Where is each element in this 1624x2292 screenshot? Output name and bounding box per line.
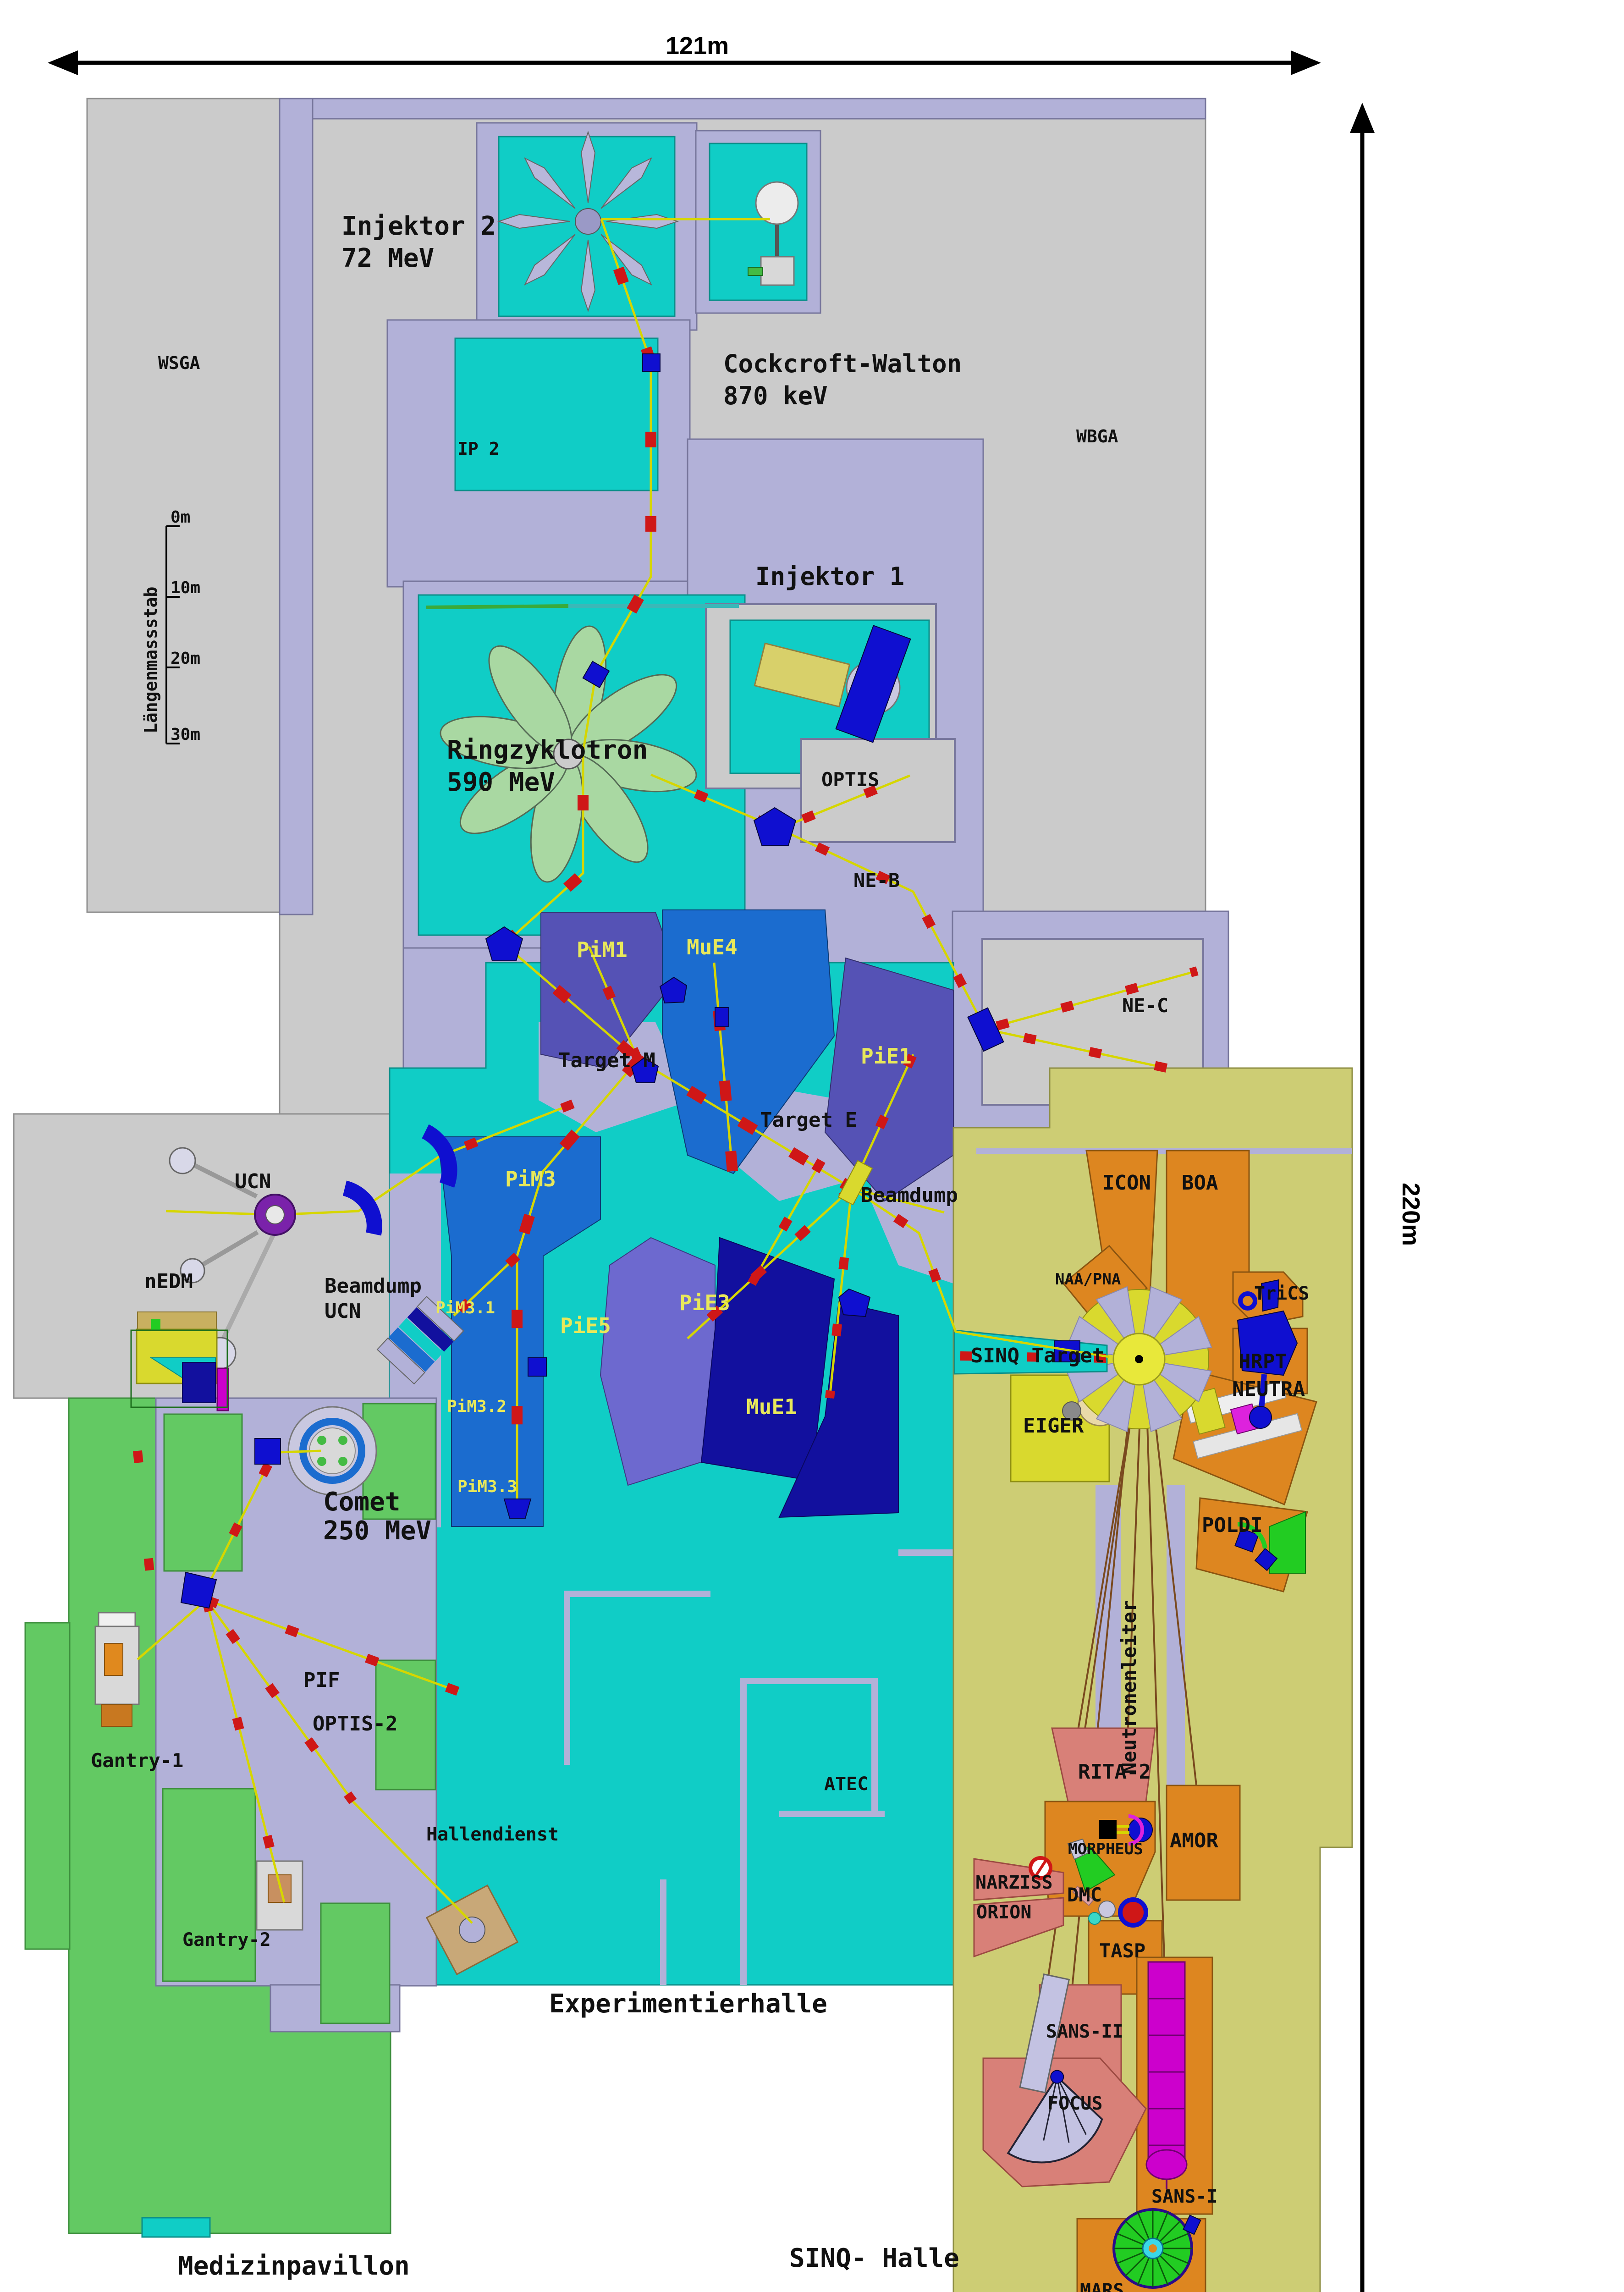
psi-facility-map: 121m 220m Längenmassstab 0m 10m 20m 30m … [0, 0, 1624, 2292]
nec-label: NE-C [1122, 994, 1168, 1017]
boa-label: BOA [1182, 1171, 1218, 1195]
ip2-room [455, 338, 658, 490]
target-m-label: Target M [558, 1049, 655, 1072]
ruler-title: Längenmassstab [141, 587, 161, 733]
pim3-3-label: PiM3.3 [457, 1477, 517, 1496]
ruler-tick-10: 10m [171, 579, 200, 597]
morpheus-label: MORPHEUS [1068, 1840, 1143, 1858]
focus-label: FOCUS [1047, 2093, 1102, 2114]
pie5-label: PiE5 [560, 1313, 611, 1338]
ucn-label: UCN [235, 1170, 271, 1193]
sans1-label: SANS-I [1151, 2186, 1218, 2207]
north-wall [280, 99, 1206, 119]
icon-label: ICON [1102, 1171, 1151, 1195]
rita2-label: RITA-2 [1078, 1760, 1151, 1784]
ruler-tick-20: 20m [171, 649, 200, 668]
hallendienst-label: Hallendienst [426, 1824, 559, 1845]
pie3-label: PiE3 [679, 1290, 730, 1315]
cockcroft-energy: 870 keV [723, 381, 828, 410]
pim1-label: PiM1 [577, 937, 628, 962]
gantry1-label: Gantry-1 [91, 1749, 183, 1772]
nedm-label: nEDM [144, 1270, 193, 1293]
injektor2-label: Injektor 2 [341, 211, 496, 241]
pim3-1-label: PiM3.1 [435, 1299, 495, 1317]
ruler-tick-0: 0m [171, 508, 190, 527]
comet-energy: 250 MeV [323, 1516, 431, 1546]
injektor1-label: Injektor 1 [755, 562, 904, 591]
pim3-label: PiM3 [505, 1167, 556, 1191]
ip2-label: IP 2 [457, 439, 500, 459]
mars-label: MARS [1080, 2280, 1124, 2292]
tasp-label: TASP [1099, 1939, 1145, 1962]
trics-label: TriCS [1254, 1283, 1309, 1304]
mue1-label: MuE1 [746, 1394, 797, 1419]
hrpt-label: HRPT [1239, 1350, 1287, 1373]
gantry2-label: Gantry-2 [182, 1929, 271, 1950]
atec-label: ATEC [824, 1774, 868, 1795]
dmc-label: DMC [1067, 1884, 1102, 1906]
sans1-detector-tube [1146, 1962, 1187, 2189]
beamdump-ucn-label1: Beamdump [325, 1274, 422, 1298]
pim3-2-label: PiM3.2 [447, 1397, 506, 1416]
ringzyklotron-label: Ringzyklotron [447, 735, 648, 765]
beamdump-label: Beamdump [861, 1184, 958, 1207]
sinq-halle-label: SINQ- Halle [789, 2243, 959, 2273]
mue4-label: MuE4 [687, 935, 738, 959]
naa-pna-label: NAA/PNA [1055, 1270, 1121, 1289]
eiger-label: EIGER [1023, 1414, 1084, 1438]
gantry2-machine [257, 1861, 303, 1930]
orion-label: ORION [976, 1902, 1031, 1923]
wbga-label: WBGA [1076, 426, 1118, 446]
neutra-label: NEUTRA [1232, 1377, 1305, 1401]
ringzyklotron-energy: 590 MeV [447, 767, 555, 797]
target-e-label: Target E [760, 1108, 857, 1132]
sans2-label: SANS-II [1046, 2021, 1123, 2042]
neb-label: NE-B [853, 869, 900, 892]
narziss-label: NARZISS [975, 1872, 1053, 1893]
medizinpavillon-label: Medizinpavillon [178, 2251, 410, 2281]
gantry1-machine [95, 1613, 139, 1726]
experimentierhalle-label: Experimentierhalle [549, 1989, 827, 2019]
comet-label: Comet [323, 1487, 401, 1517]
neutronenleiter-label: Neutronenleiter [1118, 1600, 1140, 1774]
pie1-label: PiE1 [861, 1044, 912, 1069]
width-dimension-label: 121m [666, 32, 729, 60]
amor-label: AMOR [1170, 1829, 1218, 1852]
optis2-label: OPTIS-2 [313, 1712, 397, 1736]
cockcroft-label: Cockcroft-Walton [723, 349, 962, 378]
ruler-tick-30: 30m [171, 725, 200, 744]
injektor2-cyclotron [499, 132, 677, 311]
sinq-hall [953, 1068, 1352, 2292]
height-dimension-label: 220m [1397, 1183, 1425, 1246]
west-wall [280, 99, 313, 915]
injektor2-energy: 72 MeV [341, 243, 434, 273]
poldi-label: POLDI [1202, 1514, 1262, 1537]
optis-label: OPTIS [821, 768, 879, 791]
sinq-target-label: SINQ Target [971, 1344, 1104, 1367]
pif-label: PIF [303, 1669, 340, 1692]
beamdump-ucn-label2: UCN [325, 1300, 361, 1323]
wsga-label: WSGA [158, 353, 200, 373]
